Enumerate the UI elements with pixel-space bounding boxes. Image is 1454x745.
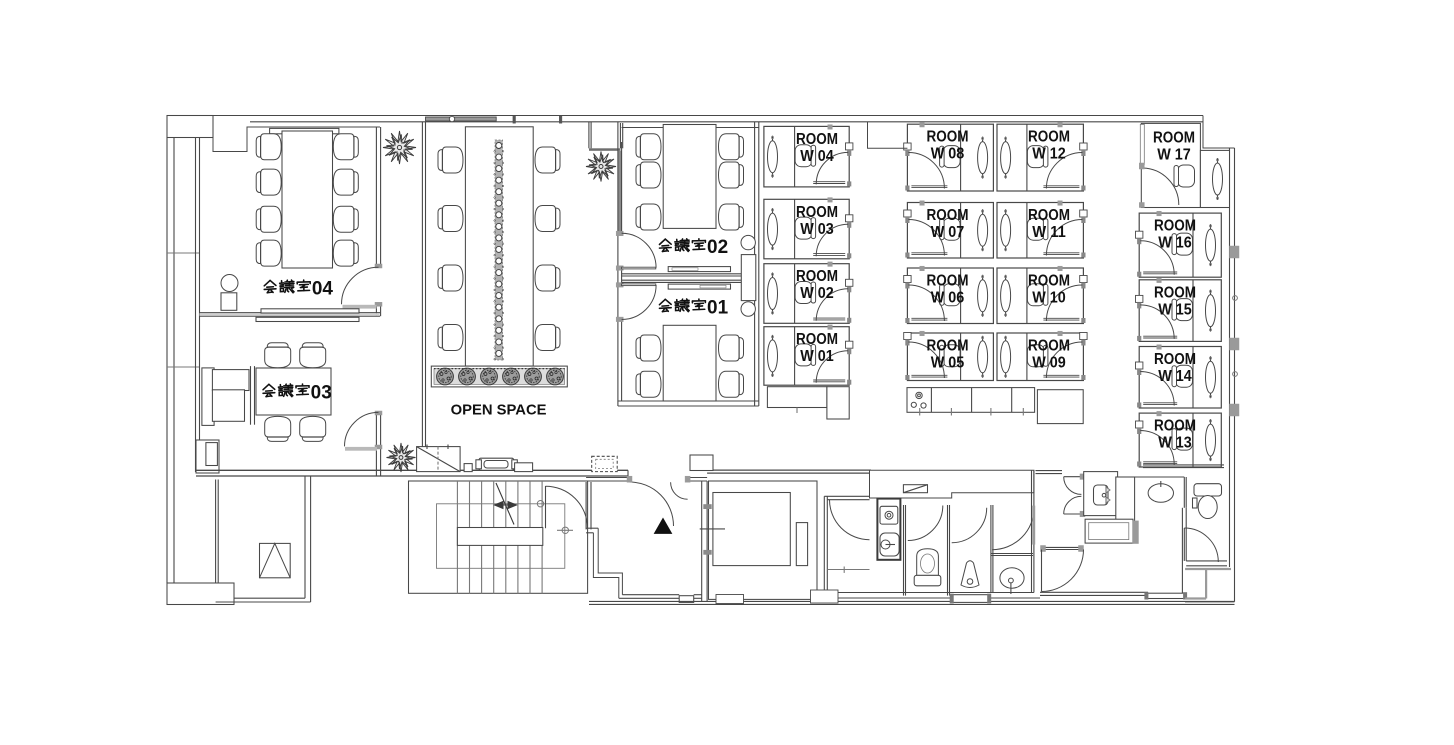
- svg-text:01: 01: [707, 297, 728, 318]
- svg-text:ROOM: ROOM: [1154, 351, 1196, 368]
- svg-text:W 13: W 13: [1158, 435, 1192, 452]
- svg-text:03: 03: [311, 382, 332, 403]
- svg-text:W 17: W 17: [1157, 146, 1191, 163]
- svg-text:W 01: W 01: [800, 348, 834, 365]
- svg-text:W 14: W 14: [1158, 368, 1192, 385]
- svg-text:04: 04: [312, 279, 334, 300]
- svg-text:ROOM: ROOM: [1154, 284, 1196, 301]
- svg-text:ROOM: ROOM: [796, 268, 838, 285]
- svg-text:ROOM: ROOM: [1154, 418, 1196, 435]
- svg-text:ROOM: ROOM: [1154, 218, 1196, 235]
- svg-text:W 03: W 03: [800, 221, 834, 238]
- svg-text:W 12: W 12: [1032, 146, 1066, 163]
- svg-text:ROOM: ROOM: [927, 129, 969, 146]
- svg-text:W 04: W 04: [800, 148, 834, 165]
- svg-text:ROOM: ROOM: [796, 204, 838, 221]
- svg-text:ROOM: ROOM: [796, 331, 838, 348]
- svg-text:W 05: W 05: [931, 355, 965, 372]
- svg-text:ROOM: ROOM: [1028, 338, 1070, 355]
- svg-text:W 07: W 07: [931, 224, 965, 241]
- svg-text:W 02: W 02: [800, 285, 834, 302]
- svg-text:ROOM: ROOM: [1028, 207, 1070, 224]
- svg-text:ROOM: ROOM: [1153, 129, 1195, 146]
- svg-text:W 11: W 11: [1032, 224, 1066, 241]
- svg-text:ROOM: ROOM: [796, 131, 838, 148]
- svg-text:ROOM: ROOM: [927, 207, 969, 224]
- svg-text:W 06: W 06: [931, 290, 965, 307]
- svg-text:ROOM: ROOM: [927, 273, 969, 290]
- svg-text:W 09: W 09: [1032, 355, 1066, 372]
- svg-text:W 16: W 16: [1158, 235, 1192, 252]
- svg-text:02: 02: [707, 237, 728, 258]
- svg-text:ROOM: ROOM: [1028, 129, 1070, 146]
- svg-text:W 15: W 15: [1158, 301, 1192, 318]
- svg-text:OPEN SPACE: OPEN SPACE: [451, 402, 547, 418]
- svg-text:ROOM: ROOM: [1028, 273, 1070, 290]
- svg-text:ROOM: ROOM: [927, 338, 969, 355]
- svg-text:W 08: W 08: [931, 146, 965, 163]
- svg-text:W 10: W 10: [1032, 290, 1066, 307]
